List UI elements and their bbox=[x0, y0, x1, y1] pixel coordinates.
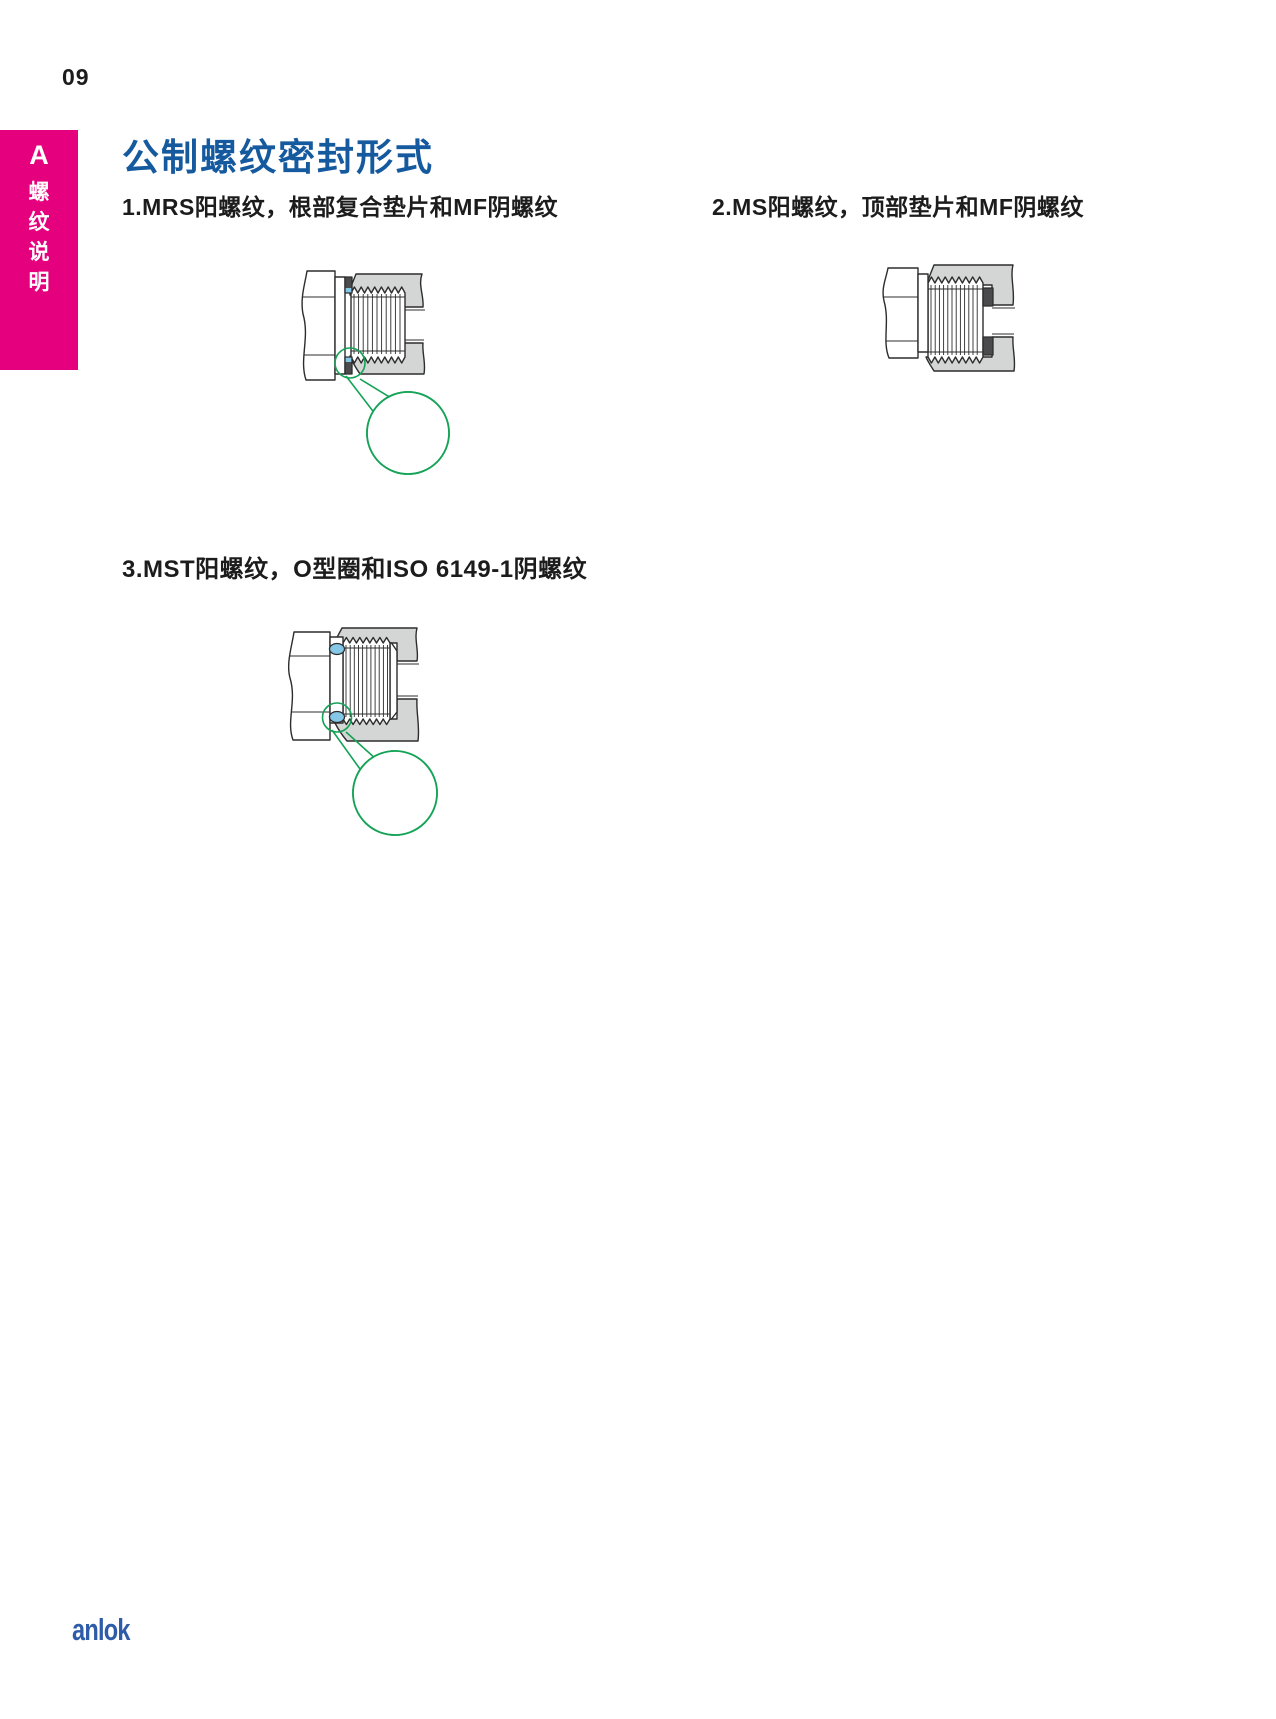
page-title: 公制螺纹密封形式 bbox=[122, 127, 434, 181]
item-3-label: 3.MST阳螺纹，O型圈和ISO 6149-1阴螺纹 bbox=[122, 549, 587, 584]
top-gasket-lower bbox=[983, 337, 993, 355]
section-letter: A bbox=[29, 140, 49, 171]
page-number: 09 bbox=[62, 64, 90, 91]
root-composite-gasket-bottom bbox=[345, 357, 352, 374]
sidebar-label-char: 纹 bbox=[29, 212, 50, 233]
mst-oring-diagram bbox=[250, 620, 455, 845]
item-2-label: 2.MS阳螺纹，顶部垫片和MF阴螺纹 bbox=[712, 188, 1084, 222]
hex-nut bbox=[302, 271, 345, 380]
brand-logo: anlok bbox=[72, 1612, 130, 1648]
detail-view-gasket bbox=[367, 391, 452, 477]
hex-nut bbox=[883, 268, 928, 358]
sidebar-vertical-label: 螺 纹 说 明 bbox=[29, 182, 50, 293]
mrs-root-gasket-diagram bbox=[293, 243, 458, 483]
top-gasket-upper bbox=[983, 288, 993, 306]
male-thread bbox=[343, 638, 397, 725]
sidebar-tab-thread-section: A 螺 纹 说 明 bbox=[0, 130, 78, 370]
root-composite-gasket-top bbox=[345, 277, 352, 293]
catalog-page: 09 A 螺 纹 说 明 公制螺纹密封形式 1.MRS阳螺纹，根部复合垫片和MF… bbox=[0, 0, 1276, 1719]
sidebar-label-char: 明 bbox=[29, 272, 50, 293]
sidebar-label-char: 说 bbox=[29, 242, 50, 263]
sidebar-label-char: 螺 bbox=[29, 182, 50, 203]
ms-top-gasket-diagram bbox=[795, 243, 1025, 393]
male-thread bbox=[928, 277, 983, 363]
detail-view-oring bbox=[352, 750, 439, 838]
item-1-label: 1.MRS阳螺纹，根部复合垫片和MF阴螺纹 bbox=[122, 188, 558, 222]
